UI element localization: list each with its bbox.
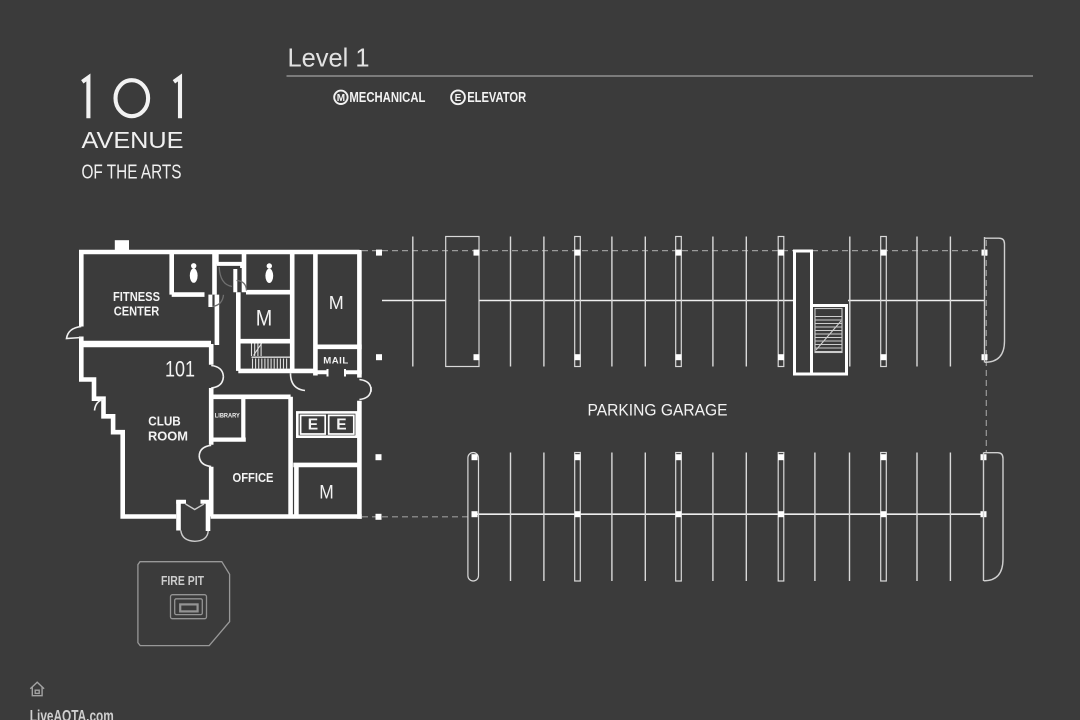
svg-text:M: M: [256, 306, 273, 331]
svg-text:MECHANICAL: MECHANICAL: [349, 90, 425, 106]
svg-text:FITNESS: FITNESS: [113, 290, 160, 304]
svg-text:OFFICE: OFFICE: [233, 470, 274, 485]
svg-text:CENTER: CENTER: [114, 305, 160, 319]
svg-text:M: M: [319, 482, 334, 504]
svg-text:CLUB: CLUB: [148, 414, 181, 429]
svg-text:LIBRARY: LIBRARY: [215, 413, 241, 420]
svg-text:M: M: [337, 93, 345, 104]
svg-text:PARKING GARAGE: PARKING GARAGE: [588, 400, 728, 419]
svg-text:OF THE ARTS: OF THE ARTS: [82, 162, 182, 184]
svg-text:101: 101: [165, 357, 195, 382]
svg-text:LiveAOTA.com: LiveAOTA.com: [30, 708, 114, 720]
svg-text:ROOM: ROOM: [148, 429, 188, 444]
svg-text:ELEVATOR: ELEVATOR: [467, 90, 526, 106]
svg-text:E: E: [336, 417, 346, 434]
svg-text:FIRE PIT: FIRE PIT: [161, 574, 204, 588]
svg-text:M: M: [329, 292, 344, 313]
svg-text:MAIL: MAIL: [323, 356, 348, 367]
svg-text:E: E: [308, 417, 318, 434]
svg-text:AVENUE: AVENUE: [82, 127, 184, 153]
svg-text:E: E: [455, 93, 462, 104]
svg-text:Level 1: Level 1: [288, 43, 370, 73]
